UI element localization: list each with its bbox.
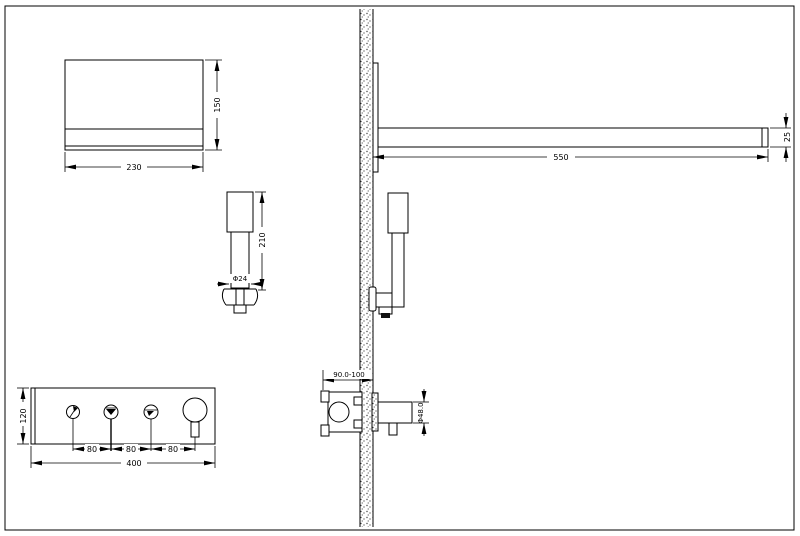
valve-tab-bottom <box>354 420 362 428</box>
dim-text-phi48: Φ48.0 <box>417 402 425 423</box>
dim-text-spacing-1: 80 <box>87 445 97 454</box>
hand-shower-wall-view <box>369 193 408 318</box>
dimension-spacing-3: 80 <box>151 444 195 454</box>
shower-system-drawing: 150 230 Φ24 <box>0 0 800 536</box>
valve-flange-bottom <box>321 425 329 436</box>
dimension-diameter-24: Φ24 <box>217 274 263 284</box>
dimension-height-120: 120 <box>17 388 29 444</box>
dim-text-550: 550 <box>553 153 568 162</box>
bracket-outlet <box>379 307 392 314</box>
hand-shower-head <box>227 192 253 232</box>
temperature-knob-stem <box>191 422 199 437</box>
dimension-length-210: 210 <box>255 192 267 290</box>
valve-escutcheon <box>372 393 378 431</box>
shower-arm-view: 550 25 <box>373 63 792 172</box>
valve-tab-top <box>354 397 362 405</box>
shower-head-body <box>65 60 203 150</box>
valve-knob <box>378 402 412 423</box>
dimension-knob-48: Φ48.0 <box>413 389 429 436</box>
arm-wall-plate <box>373 63 378 172</box>
dim-text-90-100: 90.0-100 <box>333 371 364 379</box>
valve-knob-stem <box>389 423 397 435</box>
wall-section <box>360 9 374 527</box>
dimension-spacing-1: 80 <box>73 444 111 454</box>
dim-text-400: 400 <box>126 459 141 468</box>
mixer-valve-view: 90.0-100 Φ48.0 <box>321 370 429 436</box>
dim-text-120: 120 <box>19 408 28 423</box>
dimension-length-550: 550 <box>373 149 768 162</box>
dimension-width-230: 230 <box>65 152 203 172</box>
bracket-outlet-cap <box>381 313 390 318</box>
hand-shower-detail-view: Φ24 210 <box>217 192 267 313</box>
dim-text-25: 25 <box>783 132 792 142</box>
dim-text-spacing-3: 80 <box>168 445 178 454</box>
dim-text-230: 230 <box>126 163 141 172</box>
valve-flange-top <box>321 391 329 402</box>
dim-text-phi24: Φ24 <box>233 275 248 283</box>
technical-drawing-sheet: 150 230 Φ24 <box>0 0 800 536</box>
wall-hand-shower-handle <box>392 233 404 307</box>
dim-text-210: 210 <box>258 232 267 247</box>
temperature-knob <box>183 398 207 422</box>
dimension-spacing-2: 80 <box>111 444 151 454</box>
shower-arm-tube <box>378 128 768 147</box>
wall-hatch <box>361 9 374 527</box>
dim-text-spacing-2: 80 <box>126 445 136 454</box>
dimension-height-150: 150 <box>205 60 222 150</box>
control-panel-view: 80 80 80 400 120 <box>17 388 215 468</box>
wall-hand-shower-head <box>388 193 408 233</box>
dim-text-150: 150 <box>213 97 222 112</box>
hand-shower-nut <box>222 289 257 313</box>
bracket-wall-plate <box>369 287 376 311</box>
shower-head-front-view: 150 230 <box>65 60 222 172</box>
dimension-arm-25: 25 <box>770 113 792 162</box>
